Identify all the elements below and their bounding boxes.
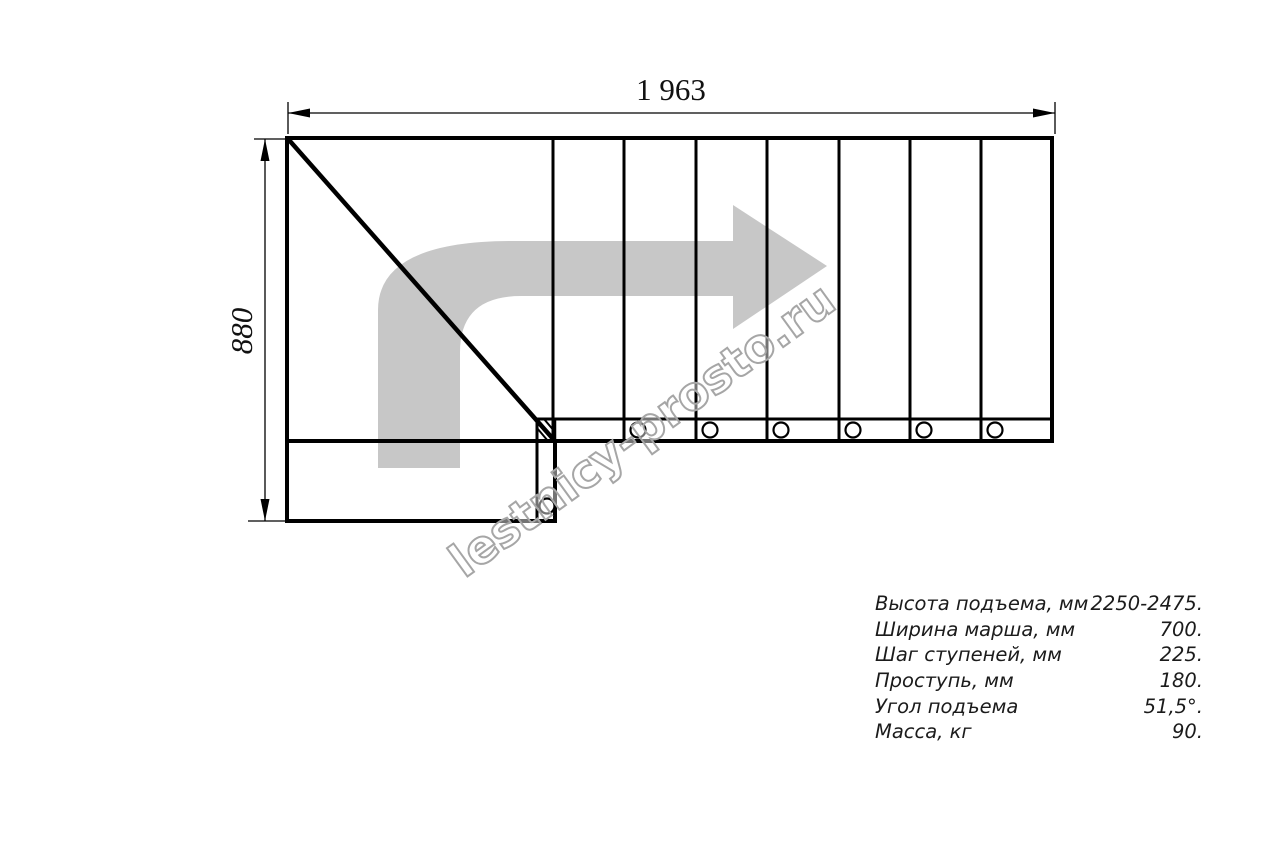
spec-value: 90.	[1172, 720, 1203, 743]
dim-arrow-right	[1033, 109, 1055, 118]
spec-value: 180.	[1160, 669, 1203, 692]
spec-label: Шаг ступеней, мм	[875, 643, 1062, 666]
spec-row-rise-height: Высота подъема, мм 2250-2475.	[875, 592, 1203, 618]
spec-row-step-pitch: Шаг ступеней, мм 225.	[875, 643, 1203, 669]
spec-label: Масса, кг	[875, 720, 972, 743]
spec-row-flight-width: Ширина марша, мм 700.	[875, 618, 1203, 644]
dim-arrow-left	[288, 109, 310, 118]
spec-row-tread-depth: Проступь, мм 180.	[875, 669, 1203, 695]
spec-label: Ширина марша, мм	[875, 618, 1075, 641]
spec-label: Проступь, мм	[875, 669, 1014, 692]
left-dimension-label: 880	[224, 308, 260, 355]
spec-value: 2250-2475.	[1091, 592, 1204, 615]
spec-table: Высота подъема, мм 2250-2475. Ширина мар…	[875, 592, 1203, 746]
top-dimension-label: 1 963	[636, 72, 706, 108]
dim-arrow-up	[261, 139, 270, 161]
spec-row-climb-angle: Угол подъема 51,5°.	[875, 695, 1203, 721]
dim-arrow-down	[261, 499, 270, 521]
spec-value: 700.	[1160, 618, 1203, 641]
spec-label: Угол подъема	[875, 695, 1018, 718]
spec-row-mass: Масса, кг 90.	[875, 720, 1203, 746]
spec-value: 51,5°.	[1144, 695, 1203, 718]
spec-value: 225.	[1160, 643, 1203, 666]
staircase-drawing-page: 1 963 880 lestnicy-prosto.ru Высота подъ…	[0, 0, 1280, 853]
spec-label: Высота подъема, мм	[875, 592, 1088, 615]
